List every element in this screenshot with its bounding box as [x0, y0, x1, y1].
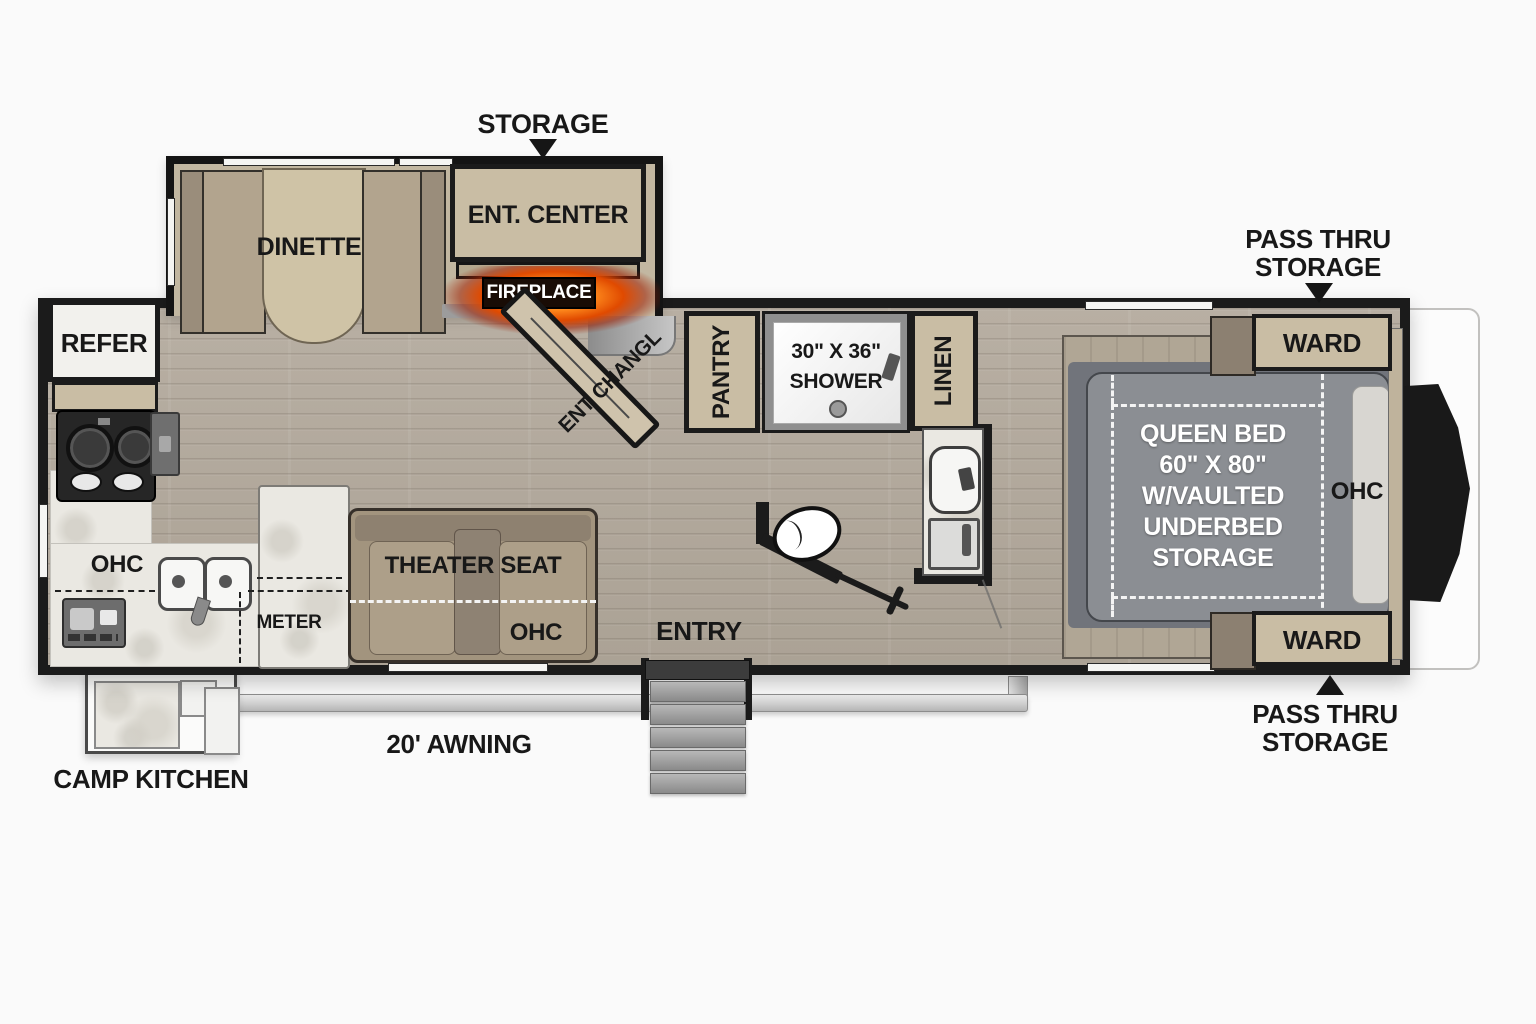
- awning-rail: [208, 694, 1028, 712]
- bedroom-cabinet-bottom: [1210, 612, 1256, 670]
- theater-ohc-label: OHC: [486, 621, 586, 645]
- pantry-label: PANTRY: [710, 312, 734, 432]
- awning-label: 20' AWNING: [359, 731, 559, 757]
- kitchen-ohc-dash-upper: [257, 577, 342, 579]
- window-slide-top-short: [399, 158, 453, 166]
- bed-text-line3: W/VAULTED: [1106, 481, 1320, 512]
- bed-text-line2: 60" X 80": [1106, 450, 1320, 481]
- microwave-vents: [68, 634, 118, 641]
- stove-knob-right: [112, 472, 144, 492]
- kitchen-sink-drain-left: [172, 575, 185, 588]
- kitchen-cabinet-strip: [52, 382, 158, 412]
- window-bottom-bedroom: [1087, 663, 1215, 672]
- camp-kitchen-label: CAMP KITCHEN: [51, 766, 251, 792]
- meter-label: METER: [239, 613, 339, 632]
- queen-bed-text: QUEEN BED 60" X 80" W/VAULTED UNDERBED S…: [1106, 419, 1320, 574]
- linen-label: LINEN: [932, 311, 956, 431]
- window-left-wall: [39, 504, 48, 578]
- microwave: [62, 598, 126, 648]
- microwave-window: [70, 608, 94, 630]
- entry-step-4: [650, 750, 746, 771]
- toilet-seat-line: [774, 517, 806, 553]
- ward-top-label: WARD: [1252, 330, 1392, 356]
- pass-thru-top-arrow: [1305, 283, 1333, 303]
- camp-kitchen-unit: [85, 672, 237, 754]
- window-bottom-living: [388, 663, 548, 672]
- window-slide-left: [167, 198, 175, 286]
- entry-label: ENTRY: [629, 618, 769, 644]
- entry-step-1: [650, 681, 746, 702]
- stove-burner-left: [66, 424, 114, 472]
- theater-seat-label: THEATER SEAT: [373, 554, 573, 578]
- stove-side-shelf: [150, 412, 180, 476]
- bed-ohc-label: OHC: [1307, 480, 1407, 504]
- entry-step-5: [650, 773, 746, 794]
- bath-lower-cabinet: [928, 518, 980, 570]
- shower-drain: [829, 400, 847, 418]
- storage-callout-arrow: [529, 139, 557, 159]
- pass-thru-bottom-arrow: [1316, 675, 1344, 695]
- theater-ohc-dash: [350, 600, 596, 603]
- window-slide-top-long: [223, 158, 395, 166]
- microwave-panel: [100, 610, 117, 625]
- entry-step-2: [650, 704, 746, 725]
- shower-label: SHOWER: [746, 371, 926, 392]
- dinette-label: DINETTE: [239, 235, 379, 260]
- bed-text-line4: UNDERBED: [1106, 512, 1320, 543]
- bed-dash-top: [1112, 404, 1324, 407]
- kitchen-ohc-label: OHC: [67, 553, 167, 577]
- floorplan-canvas: REFER OHC METER THEATER SEAT OHC ENTRY: [0, 0, 1536, 1024]
- stove-side-shelf-latch: [159, 436, 171, 452]
- pass-thru-bottom-label-2: STORAGE: [1225, 729, 1425, 755]
- ent-center-label: ENT. CENTER: [448, 203, 648, 228]
- kitchen-ohc-dash-left: [55, 590, 155, 592]
- bed-text-line5: STORAGE: [1106, 543, 1320, 574]
- pass-thru-top-label-1: PASS THRU: [1218, 226, 1418, 252]
- camp-kitchen-counter: [94, 681, 180, 749]
- kitchen-ohc-dash-right: [248, 590, 352, 592]
- storage-callout-label: STORAGE: [443, 111, 643, 138]
- stove-dial: [98, 418, 110, 425]
- bed-dash-left-stub-bottom: [1111, 598, 1114, 617]
- stove-knob-left: [70, 472, 102, 492]
- window-top-bedroom: [1085, 301, 1213, 310]
- kitchen-sink-drain-right: [219, 575, 232, 588]
- ward-bottom-label: WARD: [1252, 627, 1392, 653]
- camp-kitchen-box-tall: [204, 687, 240, 755]
- pass-thru-top-label-2: STORAGE: [1218, 254, 1418, 280]
- entry-step-platform: [645, 660, 750, 680]
- refer-label: REFER: [44, 330, 164, 356]
- bed-text-line1: QUEEN BED: [1106, 419, 1320, 450]
- entry-step-3: [650, 727, 746, 748]
- stove-cooktop: [56, 410, 156, 502]
- shower-size-label: 30" X 36": [746, 341, 926, 362]
- bath-cabinet-handle: [962, 524, 971, 556]
- bed-dash-left-stub-top: [1111, 375, 1114, 404]
- bedroom-cabinet-top: [1210, 316, 1256, 376]
- pass-thru-bottom-label-1: PASS THRU: [1225, 701, 1425, 727]
- bed-dash-bottom: [1112, 596, 1324, 599]
